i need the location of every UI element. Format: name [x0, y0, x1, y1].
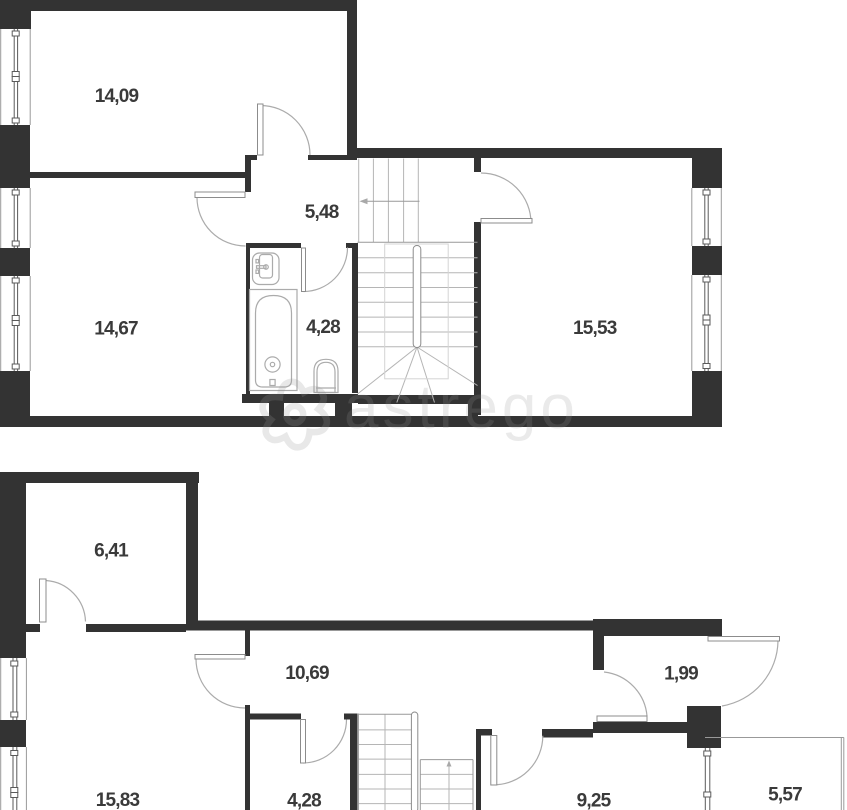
svg-text:astrego: astrego — [344, 373, 579, 442]
svg-text:5,57: 5,57 — [768, 785, 802, 806]
svg-text:1,99: 1,99 — [664, 664, 698, 685]
svg-text:4,28: 4,28 — [287, 791, 321, 810]
svg-text:6,41: 6,41 — [94, 541, 129, 562]
svg-text:14,09: 14,09 — [95, 86, 139, 107]
svg-text:15,53: 15,53 — [573, 318, 617, 339]
svg-text:9,25: 9,25 — [577, 791, 612, 810]
svg-text:14,67: 14,67 — [94, 319, 138, 340]
svg-text:4,28: 4,28 — [306, 317, 340, 338]
svg-text:15,83: 15,83 — [96, 790, 140, 810]
svg-text:5,48: 5,48 — [305, 202, 339, 223]
svg-text:10,69: 10,69 — [285, 663, 329, 684]
